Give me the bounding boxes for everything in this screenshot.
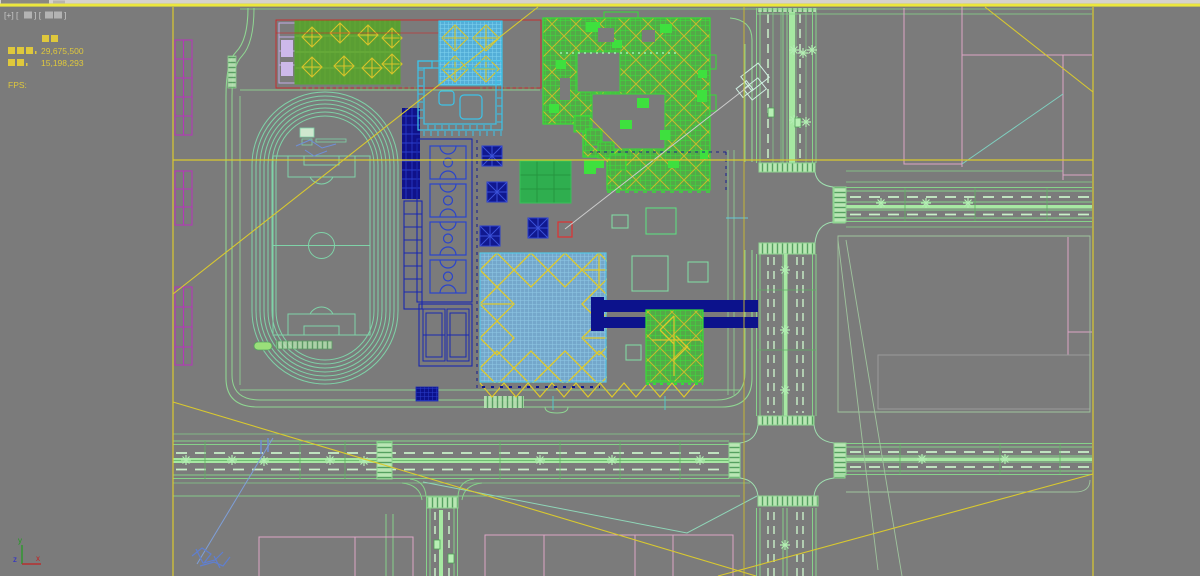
svg-text:]: ] [64,10,66,20]
svg-text:x: x [36,554,40,563]
svg-text:z: z [13,555,17,564]
svg-text:] [: ] [ [34,10,42,20]
svg-text:y: y [18,536,22,545]
svg-text:29,675,500: 29,675,500 [41,46,84,56]
svg-text:15,198,293: 15,198,293 [41,58,84,68]
svg-text:FPS:: FPS: [8,80,27,90]
svg-text:[+] [: [+] [ [4,10,19,20]
